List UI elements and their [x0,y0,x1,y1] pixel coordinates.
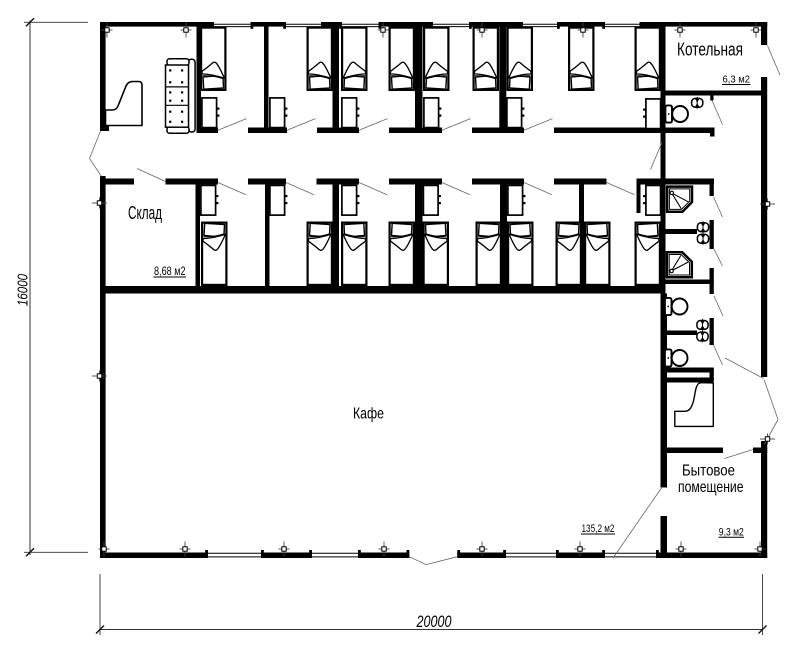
svg-text:8,68 м2: 8,68 м2 [154,264,186,278]
svg-text:135,2 м2: 135,2 м2 [582,523,615,535]
svg-text:Кафе: Кафе [353,406,384,423]
svg-text:помещение: помещение [678,479,744,496]
svg-text:9,3 м2: 9,3 м2 [719,527,744,539]
svg-text:Склад: Склад [128,203,162,223]
svg-text:Котельная: Котельная [677,40,743,60]
svg-text:16000: 16000 [15,274,32,306]
svg-text:6,3 м2: 6,3 м2 [723,74,751,86]
svg-text:20000: 20000 [416,613,452,631]
svg-text:Бытовое: Бытовое [682,463,735,480]
